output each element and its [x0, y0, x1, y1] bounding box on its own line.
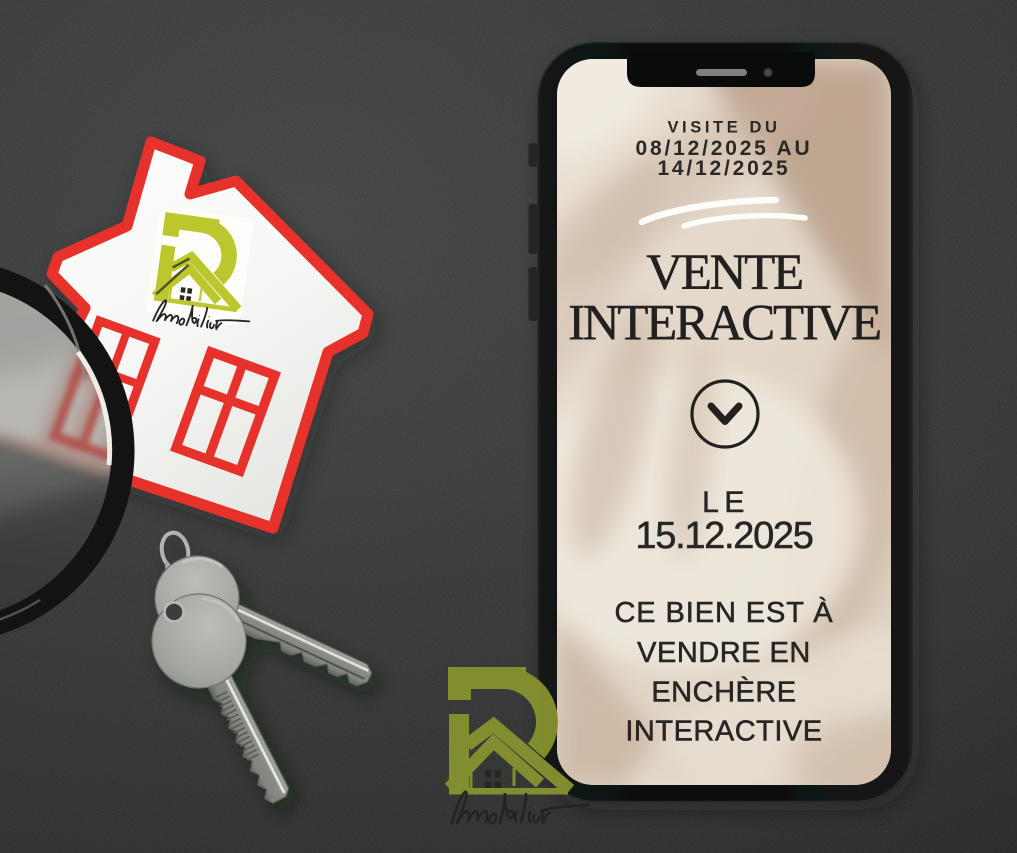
svg-text:INTERACTIVE: INTERACTIVE — [625, 716, 822, 748]
svg-text:15.12.2025: 15.12.2025 — [635, 515, 812, 557]
svg-text:VENTE: VENTE — [646, 245, 802, 301]
svg-text:VENDRE EN: VENDRE EN — [637, 637, 811, 669]
svg-text:VISITE DU: VISITE DU — [667, 119, 780, 137]
svg-text:INTERACTIVE: INTERACTIVE — [568, 296, 880, 352]
svg-text:14/12/2025: 14/12/2025 — [657, 157, 790, 180]
svg-text:ENCHÈRE: ENCHÈRE — [651, 676, 796, 709]
svg-text:CE BIEN EST À: CE BIEN EST À — [614, 596, 833, 629]
